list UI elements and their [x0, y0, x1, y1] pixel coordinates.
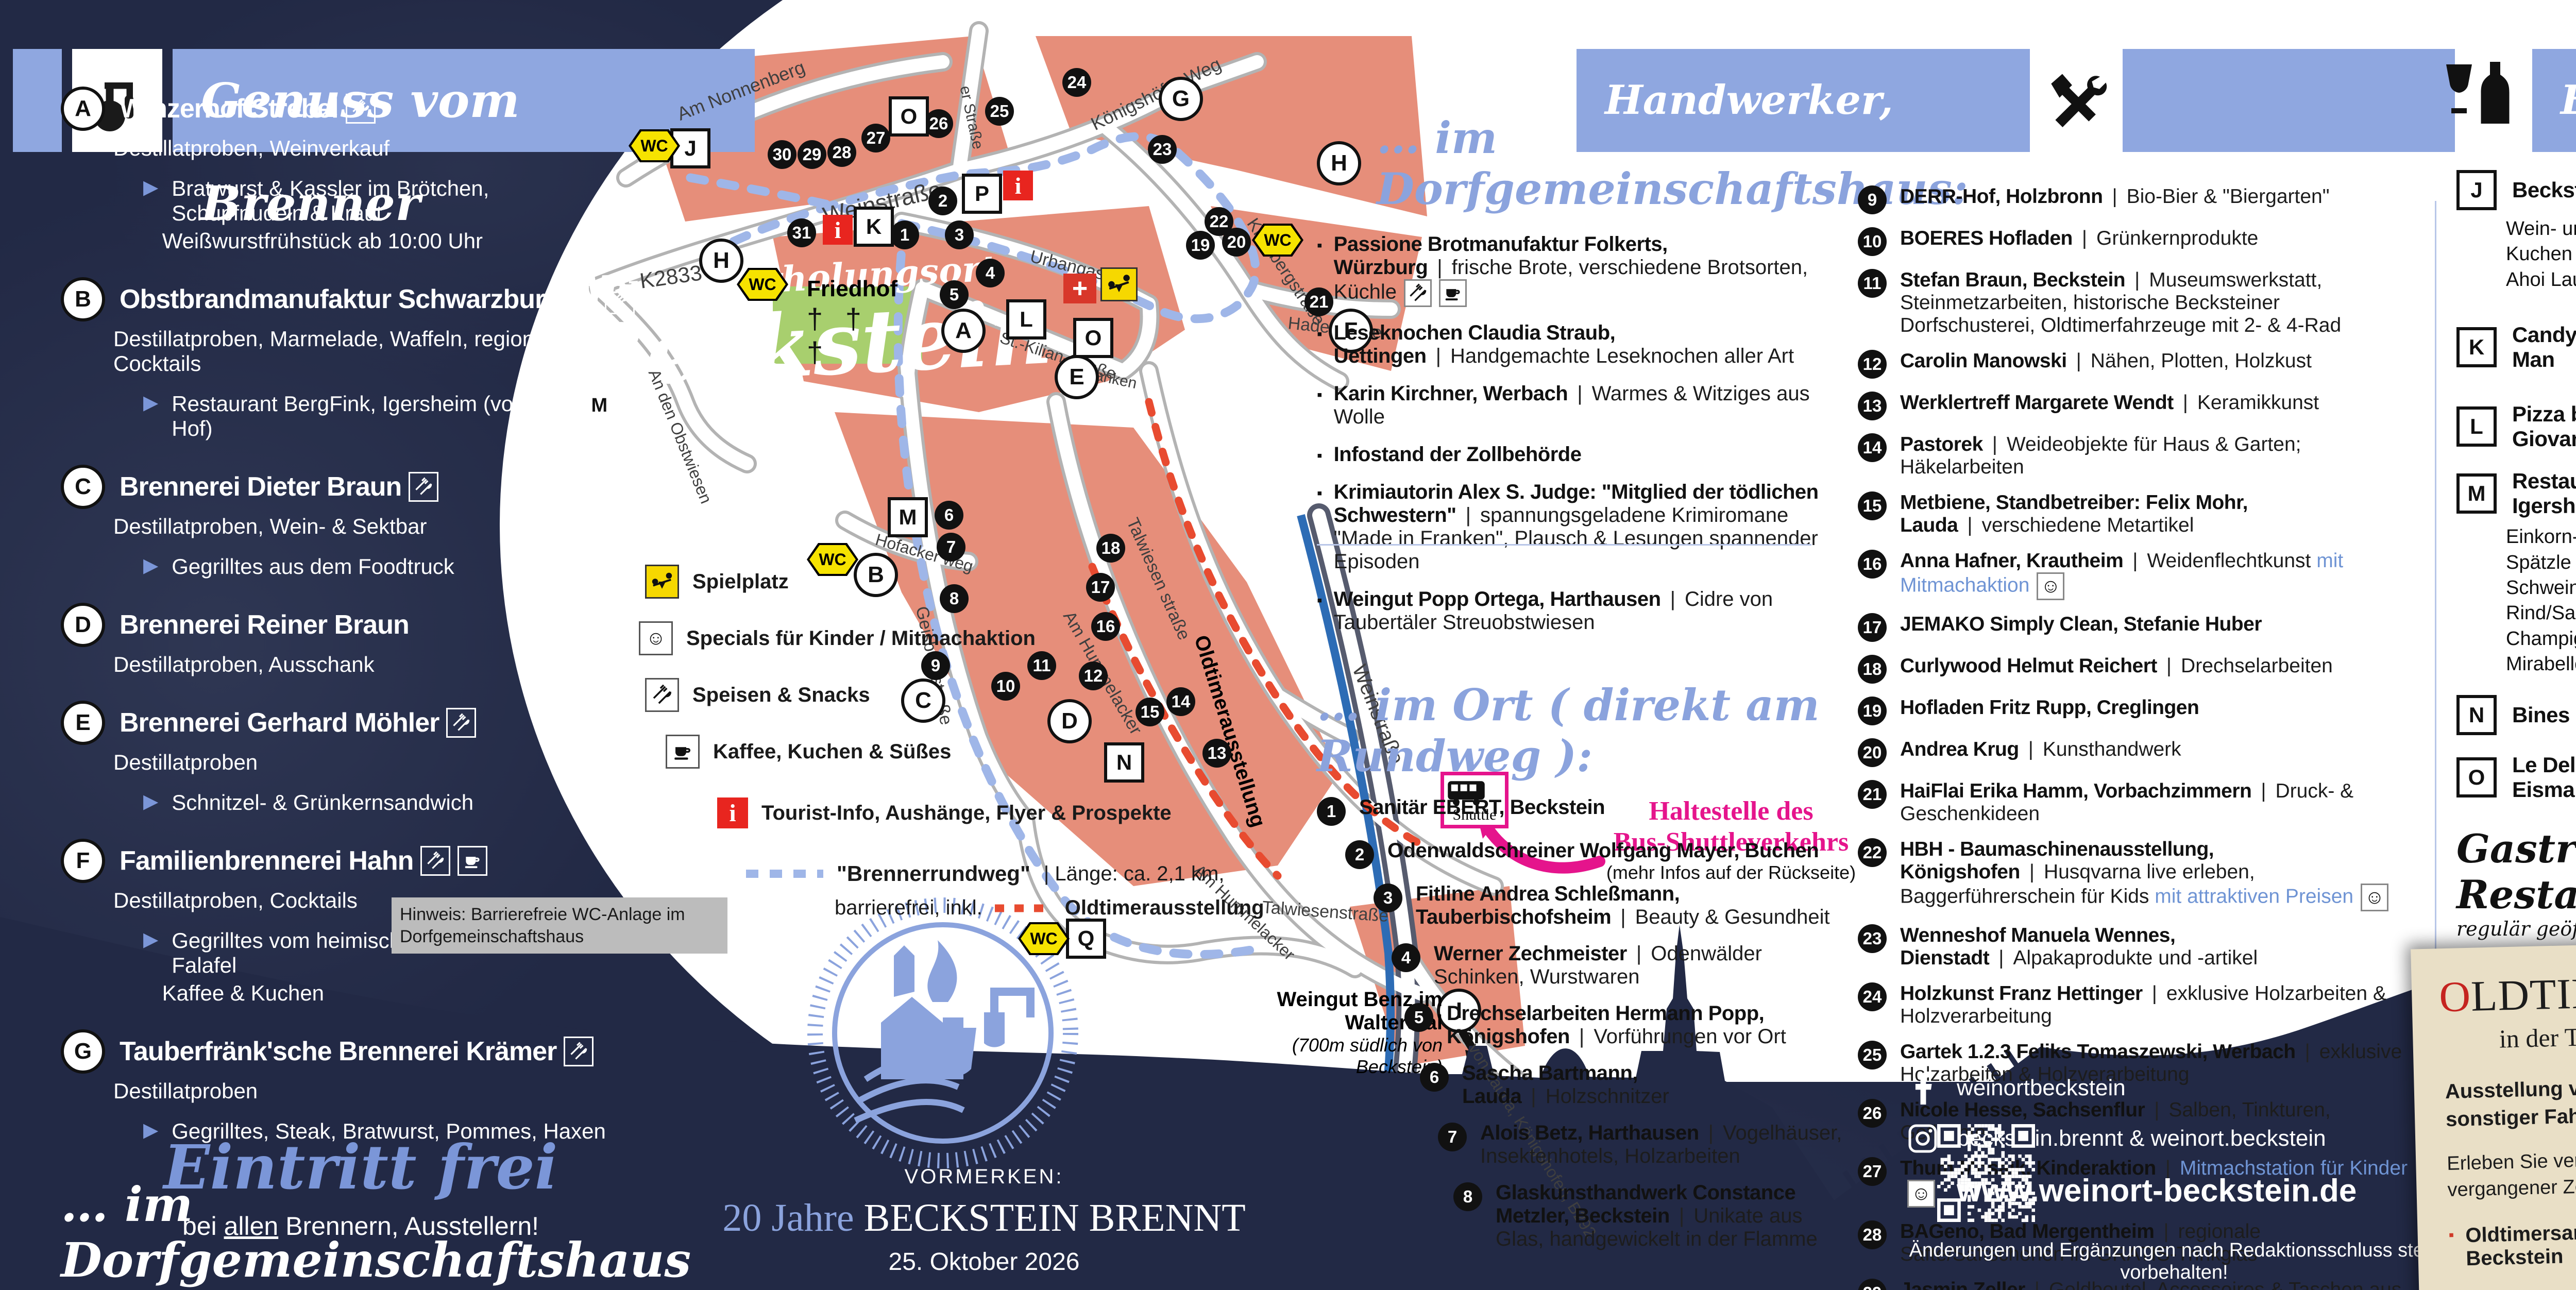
legend-oldtimer: Oldtimerausstellung	[1065, 896, 1264, 920]
smiley-icon: ☺	[639, 621, 673, 655]
divider-horizontal	[1317, 544, 1811, 546]
map-marker-D[interactable]: D	[1047, 699, 1092, 743]
exhibitor-item-18: 18Curlywood Helmut Reichert|Drechselarbe…	[1858, 655, 2420, 684]
exhibitor-desc: Kunsthandwerk	[2043, 738, 2181, 760]
map-marker-square-K[interactable]: K	[854, 207, 894, 247]
legend-kaffee: Kaffee, Kuchen & Süßes	[713, 740, 951, 763]
brenner-desc: Destillatproben	[113, 750, 612, 775]
exhibitor-title: Gartek 1.2.3 Feliks Tomaszewski, Werbach	[1900, 1041, 2296, 1063]
map-marker-6[interactable]: 6	[935, 501, 963, 530]
legend-kinder: Specials für Kinder / Mitmachaktion	[686, 627, 1036, 650]
separator: |	[1967, 514, 1972, 536]
essen-title: Candy Man	[2512, 322, 2576, 372]
exhibitor-desc: Alpakaprodukte und -artikel	[2013, 947, 2258, 969]
cup-icon	[457, 846, 487, 876]
exhibitor-desc: verschiedene Metartikel	[1982, 514, 2194, 536]
save-the-date: VORMERKEN: 20 Jahre BECKSTEIN BRENNT 25.…	[711, 1165, 1257, 1276]
dgh-item-desc: Handgemachte Leseknochen aller Art	[1450, 345, 1794, 367]
right-accent-square	[2370, 49, 2419, 152]
brenner-title: Brennerei Reiner Braun	[120, 609, 409, 640]
instagram-icon	[1906, 1122, 1939, 1155]
separator: |	[1531, 1085, 1536, 1108]
cup-icon	[666, 735, 700, 769]
separator: |	[2112, 185, 2117, 208]
brenner-item-C: CBrennerei Dieter BraunDestillatproben, …	[61, 465, 612, 579]
map-marker-19[interactable]: 19	[1186, 231, 1215, 260]
legend-rundweg-name: "Brennerrundweg"	[837, 861, 1030, 886]
exhibitor-item-20: 20Andrea Krug|Kunsthandwerk	[1858, 738, 2420, 767]
brenner-sub: ▶Restaurant BergFink, Igersheim (vor dem…	[143, 392, 612, 441]
arrow-right-icon: ▶	[143, 176, 158, 200]
dgh-item: ▪Infostand der Zollbehörde	[1317, 443, 1848, 466]
ort-item-5: 5Drechselarbeiten Hermann Popp, Königsho…	[1404, 1002, 1848, 1048]
brenner-item-A: AWinzerhof StrebelDestillatproben, Weinv…	[61, 87, 612, 253]
separator: |	[1998, 947, 2004, 969]
fork-icon	[346, 94, 376, 124]
marker-square-L: L	[2456, 406, 2497, 447]
exhibitor-title: Pastorek	[1900, 433, 1983, 455]
separator: |	[1708, 1122, 1714, 1144]
divider-vertical	[2435, 201, 2436, 963]
marker-number-6: 6	[1420, 1063, 1449, 1092]
fork-icon	[1404, 279, 1432, 307]
brenner-item-E: EBrennerei Gerhard MöhlerDestillatproben…	[61, 701, 612, 815]
exhibitor-desc: Bio-Bier & "Biergarten"	[2127, 185, 2330, 208]
legend-tourist: Tourist-Info, Aushänge, Flyer & Prospekt…	[761, 802, 1172, 825]
friedhof-crosses: † † †	[807, 302, 894, 369]
hinweis-note: Hinweis: Barrierefreie WC-Anlage im Dorf…	[392, 897, 727, 954]
fork-icon	[564, 1037, 594, 1066]
map-marker-8[interactable]: 8	[940, 584, 969, 613]
map-marker-10[interactable]: 10	[991, 672, 1020, 701]
ort-item-desc: Beauty & Gesundheit	[1635, 906, 1830, 928]
brenner-desc: Destillatproben, Wein- & Sektbar	[113, 514, 612, 539]
exhibitor-title: Andrea Krug	[1900, 738, 2019, 760]
separator: |	[1636, 942, 1641, 965]
map-marker-13[interactable]: 13	[1202, 739, 1231, 768]
marker-letter-E: E	[61, 701, 105, 745]
exhibitor-title: BOERES Hofladen	[1900, 227, 2073, 249]
fork-icon	[446, 708, 476, 738]
dgh-heading: H… im Dorfgemeinschaftshaus:	[1317, 112, 1848, 214]
ort-item-6: 6Sascha Bartmann, Lauda|Holzschnitzer	[1420, 1062, 1848, 1108]
ort-item-title: Werner Zechmeister	[1434, 942, 1627, 965]
exhibitor-desc: Keramikkunst	[2197, 392, 2319, 414]
map-marker-square-Q[interactable]: Q	[1066, 919, 1106, 959]
tourist-info-marker[interactable]: i	[1003, 171, 1033, 200]
brenner-item-D: DBrennerei Reiner BraunDestillatproben, …	[61, 603, 612, 677]
marker-letter-G: G	[61, 1029, 105, 1074]
marker-number-9: 9	[1858, 185, 1887, 214]
separator: |	[1579, 1025, 1584, 1048]
exhibitor-title: Werklertreff Margarete Wendt	[1900, 392, 2174, 414]
oldtimer-paragraph-1: Ausstellung verschiedener Autos, Roller …	[2445, 1067, 2576, 1133]
playground-icon	[645, 565, 679, 599]
dgh-item-title: Karin Kirchner, Werbach	[1334, 382, 1568, 405]
separator: |	[2134, 269, 2140, 291]
map-marker-29[interactable]: 29	[798, 140, 826, 169]
cup-icon	[1439, 279, 1467, 307]
brenner-sub-text: Weißwurstfrühstück ab 10:00 Uhr	[162, 229, 483, 253]
brenner-title: Obstbrandmanufaktur Schwarzburg	[120, 284, 561, 315]
exhibitor-item-16: 16Anna Hafner, Krautheim|Weidenflechtkun…	[1858, 550, 2420, 600]
marker-number-8: 8	[1453, 1182, 1482, 1211]
arrow-right-icon	[143, 229, 149, 252]
ort-item-3: 3Fitline Andrea Schleßmann, Tauberbischo…	[1374, 882, 1848, 929]
marker-number-20: 20	[1858, 738, 1887, 767]
marker-square-M: M	[2456, 473, 2497, 514]
marker-number-22: 22	[1858, 838, 1887, 867]
street-label: Friedhof	[807, 276, 897, 302]
gastronomie-heading-text: Gastronomie & Restaurants	[2456, 826, 2576, 918]
marker-letter-C: C	[61, 465, 105, 509]
fork-icon	[409, 472, 438, 502]
ort-item-desc: Vorführungen vor Ort	[1594, 1025, 1786, 1048]
marker-number-7: 7	[1438, 1123, 1467, 1151]
brenner-sub: ▶Bratwurst & Kassler im Brötchen, Schupf…	[143, 176, 612, 226]
essen-title: Bines Bauernhof	[2512, 703, 2576, 727]
map-marker-9[interactable]: 9	[921, 651, 950, 680]
marker-number-21: 21	[1858, 780, 1887, 809]
map-marker-25[interactable]: 25	[985, 97, 1014, 126]
legend-spielplatz: Spielplatz	[692, 570, 789, 593]
marker-letter-F: F	[61, 839, 105, 883]
essen-item-M: MRestaurant BergFink, Igersheim|Regional…	[2456, 469, 2576, 677]
eintritt-line: bei allen Brennern, Ausstellern!	[155, 1211, 567, 1241]
brenner-desc: Destillatproben, Marmelade, Waffeln, reg…	[113, 327, 612, 376]
bullet-icon: ▪	[1317, 386, 1323, 429]
marker-number-26: 26	[1858, 1099, 1887, 1128]
marker-number-23: 23	[1858, 924, 1887, 953]
essen-title: Pizza bei Giovanni	[2512, 402, 2576, 451]
separator: |	[1436, 345, 1441, 367]
essen-title: Restaurant BergFink, Igersheim	[2512, 469, 2576, 518]
marker-letter-D: D	[61, 603, 105, 647]
map-marker-3[interactable]: 3	[945, 220, 974, 249]
marker-number-2: 2	[1345, 840, 1374, 869]
map-marker-14[interactable]: 14	[1166, 687, 1195, 716]
separator: |	[2305, 1041, 2310, 1063]
disclaimer: Änderungen und Ergänzungen nach Redaktio…	[1865, 1240, 2483, 1284]
brenner-item-G: GTauberfränk'sche Brennerei KrämerDestil…	[61, 1029, 612, 1144]
marker-number-27: 27	[1858, 1157, 1887, 1186]
brenner-title: Brennerei Gerhard Möhler	[120, 707, 439, 738]
map-marker-31[interactable]: 31	[787, 218, 816, 247]
map-marker-7[interactable]: 7	[937, 533, 965, 562]
brenner-column: AWinzerhof StrebelDestillatproben, Weinv…	[61, 87, 612, 1290]
separator: |	[2082, 227, 2087, 249]
red-dash-sample	[995, 903, 1052, 913]
exhibitor-desc: Grünkernprodukte	[2096, 227, 2258, 249]
exhibitor-desc: Nähen, Plotten, Holzkust	[2091, 350, 2312, 372]
dgh-item: ▪Leseknochen Claudia Straub, Uettingen|H…	[1317, 321, 1848, 368]
marker-number-15: 15	[1858, 491, 1887, 520]
map-marker-17[interactable]: 17	[1086, 573, 1115, 602]
blue-dash-sample	[746, 869, 823, 879]
oldtimer-bullet-2: sowie private Sammlerfreunde aus der Reg…	[2467, 1281, 2576, 1290]
marker-letter-H: H	[1317, 141, 1361, 185]
oldtimer-title: OLDTIMER-AUSSTELLUNG	[2411, 958, 2576, 1023]
oldtimer-bullet-1: Oldtimersammlung Stefan Braun, Beckstein	[2465, 1214, 2576, 1270]
marker-letter-B: B	[61, 277, 105, 321]
essen-item-J: JBecksteiner Winzer eGWein- und Sektspez…	[2456, 170, 2576, 293]
exhibitor-title: Holzkunst Franz Hettinger	[1900, 982, 2143, 1005]
tourist-info-marker[interactable]: i	[823, 215, 853, 245]
separator: |	[1437, 256, 1442, 279]
map-marker-30[interactable]: 30	[768, 140, 796, 169]
marker-number-12: 12	[1858, 350, 1887, 379]
map-marker-B[interactable]: B	[854, 553, 898, 597]
separator: |	[1992, 433, 1997, 455]
marker-number-17: 17	[1858, 613, 1887, 642]
exhibitor-item-10: 10BOERES Hofladen|Grünkernprodukte	[1858, 227, 2420, 256]
map-marker-C[interactable]: C	[901, 678, 945, 723]
map-marker-square-M[interactable]: M	[888, 497, 928, 537]
bullet-icon: ▪	[1317, 237, 1323, 307]
exhibitor-title: HaiFlai Erika Hamm, Vorbachzimmern	[1900, 780, 2251, 802]
smiley-icon: ☺	[2361, 884, 2388, 911]
marker-square-O: O	[2456, 757, 2497, 797]
marker-number-10: 10	[1858, 227, 1887, 256]
brenner-title: Winzerhof Strebel	[120, 93, 338, 124]
map-marker-square-P[interactable]: P	[962, 174, 1002, 214]
vormerken-label: VORMERKEN:	[711, 1165, 1257, 1189]
brenner-desc: Destillatproben, Ausschank	[113, 652, 612, 677]
legend-rundweg-barrier: barrierefrei, inkl.	[835, 896, 982, 920]
exhibitor-item-12: 12Carolin Manowski|Nähen, Plotten, Holzk…	[1858, 350, 2420, 379]
essen-title: Le Delizie Eismanufaktur	[2512, 753, 2576, 802]
arrow-right-icon: ▶	[143, 790, 158, 814]
marker-number-5: 5	[1404, 1003, 1433, 1032]
marker-number-3: 3	[1374, 884, 1402, 912]
ort-item-7: 7Alois Betz, Harthausen|Vogelhäuser, Ins…	[1438, 1122, 1848, 1168]
ort-item-1: 1Sanitär EBERT, Beckstein	[1317, 796, 1848, 826]
legend-speisen: Speisen & Snacks	[692, 684, 870, 707]
eintritt-frei: Eintritt frei bei allen Brennern, Ausste…	[155, 1131, 567, 1241]
flyer-beckstein-brennt: Genuss vom Brenner Handwerker, Kunst & A…	[0, 0, 2576, 1290]
facebook-handle: weinortbeckstein	[1957, 1075, 2126, 1101]
exhibitor-item-14: 14Pastorek|Weideobjekte für Haus & Garte…	[1858, 433, 2420, 479]
oldtimer-paragraph-2: Erleben Sie verschiedene Relikte aus län…	[2447, 1141, 2576, 1204]
tourist-info-icon: i	[717, 797, 748, 828]
map-marker-2[interactable]: 2	[928, 186, 957, 215]
exhibitor-title: Curlywood Helmut Reichert	[1900, 655, 2157, 677]
brenner-sub-text: Gegrilltes aus dem Foodtruck	[172, 554, 454, 579]
map-marker-A[interactable]: A	[941, 309, 986, 353]
essen-desc2: Einkorn-Knöpfle mit Knalleffekt (vegetar…	[2506, 524, 2576, 677]
brenner-sub-text: Schnitzel- & Grünkernsandwich	[172, 790, 473, 815]
marker-square-K: K	[2456, 327, 2497, 367]
exhibitor-desc-highlight: mit attraktiven Preisen	[2155, 885, 2353, 907]
exhibitor-title: JEMAKO Simply Clean, Stefanie Huber	[1900, 613, 2262, 635]
dgh-item: ▪Karin Kirchner, Werbach|Warmes & Witzig…	[1317, 382, 1848, 429]
exhibitor-title: Anna Hafner, Krautheim	[1900, 550, 2123, 572]
map-marker-24[interactable]: 24	[1062, 68, 1091, 97]
qr-code	[1937, 1124, 2035, 1222]
ort-item-title: Odenwaldschreiner Wolfgang Mayer, Buchen	[1387, 839, 1819, 862]
fork-icon	[645, 678, 679, 712]
bullet-icon: ▪	[1317, 485, 1323, 573]
exhibitor-item-22: 22HBH - Baumaschinenausstellung, Königsh…	[1858, 838, 2420, 911]
separator: |	[1679, 1204, 1684, 1227]
brenner-sub: ▶Schnitzel- & Grünkernsandwich	[143, 790, 612, 815]
ort-item-4: 4Werner Zechmeister|Odenwälder Schinken,…	[1392, 942, 1848, 989]
marker-number-13: 13	[1858, 392, 1887, 420]
marker-number-24: 24	[1858, 982, 1887, 1011]
marker-number-11: 11	[1858, 269, 1887, 298]
exhibitor-desc: Weidenflechtkunst	[2147, 550, 2316, 572]
map-marker-square-O[interactable]: O	[889, 96, 929, 137]
brenner-item-B: BObstbrandmanufaktur SchwarzburgDestilla…	[61, 277, 612, 441]
dgh-item-title: Infostand der Zollbehörde	[1334, 443, 1582, 466]
header-essen: Essen, Wein & Kulinarisches	[2532, 49, 2576, 152]
brenner-desc: Destillatproben, Weinverkauf	[113, 136, 612, 161]
oldtimer-panel: OLDTIMER-AUSSTELLUNG in der Talwiesenstr…	[2411, 935, 2576, 1290]
separator: |	[2028, 738, 2033, 760]
separator: |	[1577, 382, 1582, 405]
marker-number-14: 14	[1858, 433, 1887, 462]
dgh-item: ▪Weingut Popp Ortega, Harthausen|Cidre v…	[1317, 588, 1848, 634]
separator: |	[1620, 906, 1625, 928]
brenner-title: Familienbrennerei Hahn	[120, 845, 413, 876]
separator: |	[2076, 350, 2081, 372]
facebook-icon	[1906, 1072, 1939, 1105]
dorfgemeinschaftshaus-list: H… im Dorfgemeinschaftshaus:▪Passione Br…	[1317, 112, 1848, 1264]
tools-icon	[2038, 49, 2115, 152]
bullet-icon: ▪	[1317, 326, 1323, 368]
map-marker-27[interactable]: 27	[861, 124, 890, 152]
exhibitor-desc: Drechselarbeiten	[2181, 655, 2333, 677]
spacer	[1317, 649, 1848, 680]
marker-number-18: 18	[1858, 655, 1887, 684]
exhibitor-title: Stefan Braun, Beckstein	[1900, 269, 2125, 291]
fork-icon	[420, 846, 450, 876]
map-marker-square-L[interactable]: L	[1006, 299, 1046, 340]
separator: |	[2029, 861, 2035, 883]
brenner-sub-text: Kaffee & Kuchen	[162, 981, 324, 1006]
arrow-right-icon: ▶	[143, 392, 158, 415]
exhibitor-item-15: 15Metbiene, Standbetreiber: Felix Mohr, …	[1858, 491, 2420, 537]
arrow-right-icon: ▶	[143, 554, 158, 578]
brenner-sub: Kaffee & Kuchen	[143, 981, 612, 1006]
marker-number-25: 25	[1858, 1041, 1887, 1070]
ort-item-8: 8Glaskunsthandwerk Constance Metzler, Be…	[1453, 1181, 1848, 1251]
exhibitor-item-19: 19Hofladen Fritz Rupp, Creglingen	[1858, 697, 2420, 725]
first-aid-marker: +	[1063, 274, 1096, 303]
ort-item-title: Sanitär EBERT, Beckstein	[1359, 796, 1605, 819]
exhibitor-item-21: 21HaiFlai Erika Hamm, Vorbachzimmern|Dru…	[1858, 780, 2420, 825]
separator: |	[2152, 982, 2157, 1005]
left-accent-square	[13, 49, 62, 152]
event-20-jahre: 20 Jahre BECKSTEIN BRENNT	[711, 1196, 1257, 1241]
map-marker-15[interactable]: 15	[1136, 698, 1164, 726]
arrow-right-icon: ▶	[143, 928, 158, 952]
arrow-right-icon	[143, 981, 149, 1005]
map-marker-16[interactable]: 16	[1091, 612, 1120, 641]
brenner-sub: ▶Gegrilltes aus dem Foodtruck	[143, 554, 612, 579]
marker-number-1: 1	[1317, 797, 1346, 826]
essen-title: Becksteiner Winzer eG	[2512, 178, 2576, 202]
separator: |	[2132, 550, 2138, 572]
ort-item-title: Alois Betz, Harthausen	[1480, 1122, 1699, 1144]
map-marker-28[interactable]: 28	[827, 138, 856, 167]
marker-number-16: 16	[1858, 550, 1887, 579]
essen-item-N: NBines Bauernhof|verschiedene Crêpes	[2456, 695, 2576, 735]
dgh-item: ▪Passione Brotmanufaktur Folkerts, Würzb…	[1317, 233, 1848, 307]
ort-item-2: 2Odenwaldschreiner Wolfgang Mayer, Buche…	[1345, 839, 1848, 869]
separator: |	[1670, 588, 1675, 610]
exhibitor-title: Hofladen Fritz Rupp, Creglingen	[1900, 697, 2199, 719]
map-marker-22[interactable]: 22	[1205, 207, 1233, 236]
bullet-icon: ▪	[1317, 592, 1323, 634]
marker-square-J: J	[2456, 170, 2497, 210]
exhibitor-item-11: 11Stefan Braun, Beckstein|Museumswerksta…	[1858, 269, 2420, 337]
marker-square-N: N	[2456, 695, 2497, 735]
bullet-icon: ▪	[1317, 447, 1323, 466]
exhibitor-item-23: 23Wenneshof Manuela Wennes, Dienstadt|Al…	[1858, 924, 2420, 970]
exhibitor-title: DERR-Hof, Holzbronn	[1900, 185, 2103, 208]
map-marker-1[interactable]: 1	[890, 220, 919, 249]
map-marker-4[interactable]: 4	[976, 259, 1005, 287]
exhibitor-item-17: 17JEMAKO Simply Clean, Stefanie Huber	[1858, 613, 2420, 642]
brenner-title: Brennerei Dieter Braun	[120, 471, 401, 502]
marker-number-4: 4	[1392, 943, 1420, 972]
playground-marker	[1100, 267, 1138, 301]
map-marker-square-N[interactable]: N	[1104, 742, 1144, 783]
legend-rundweg-length: | Länge: ca. 2,1 km,	[1044, 862, 1225, 886]
marker-letter-A: A	[61, 87, 105, 131]
separator: |	[2183, 392, 2188, 414]
separator: |	[2166, 655, 2172, 677]
ort-item-desc: Holzschnitzer	[1546, 1085, 1669, 1108]
separator: |	[1466, 504, 1471, 527]
brenner-sub: Weißwurstfrühstück ab 10:00 Uhr	[143, 229, 612, 253]
brenner-desc: Destillatproben	[113, 1079, 612, 1104]
map-marker-5[interactable]: 5	[940, 280, 969, 309]
exhibitor-item-24: 24Holzkunst Franz Hettinger|exklusive Ho…	[1858, 982, 2420, 1028]
essen-item-K: KCandy Man|Mandeln, Magenbrot & Süßes, K…	[2456, 310, 2576, 384]
smiley-icon: ☺	[2037, 572, 2064, 600]
map-marker-E[interactable]: E	[1055, 355, 1099, 399]
brenner-sub-text: Bratwurst & Kassler im Brötchen, Schupfn…	[172, 176, 612, 226]
event-date: 25. Oktober 2026	[711, 1248, 1257, 1276]
wine-icon	[2429, 49, 2524, 152]
map-marker-12[interactable]: 12	[1079, 661, 1108, 690]
brenner-sub-text: Restaurant BergFink, Igersheim (vor dem …	[172, 392, 577, 441]
eintritt-title: Eintritt frei	[155, 1131, 567, 1203]
map-marker-11[interactable]: 11	[1027, 651, 1056, 680]
essen-item-L: LPizza bei Giovanni|verschiedene Pizzen …	[2456, 402, 2576, 451]
map-marker-square-O[interactable]: O	[1073, 318, 1113, 358]
map-marker-18[interactable]: 18	[1096, 534, 1125, 563]
ort-heading: … im Ort ( direkt am Rundweg ):	[1317, 680, 1848, 782]
dgh-item-title: Weingut Popp Ortega, Harthausen	[1334, 588, 1661, 610]
brenner-title: Tauberfränk'sche Brennerei Krämer	[120, 1036, 556, 1067]
map-marker-G[interactable]: G	[1159, 77, 1203, 121]
essen-item-O: OLe Delizie Eismanufaktur|verschiedene E…	[2456, 753, 2576, 802]
map-marker-H[interactable]: H	[699, 239, 743, 283]
gastronomie-heading: Gastronomie & Restaurantsbei Beckstein b…	[2456, 826, 2576, 940]
exhibitor-title: Carolin Manowski	[1900, 350, 2067, 372]
dgh-item: ▪Krimiautorin Alex S. Judge: "Mitglied d…	[1317, 481, 1848, 573]
map-marker-23[interactable]: 23	[1148, 135, 1177, 164]
marker-number-19: 19	[1858, 697, 1887, 725]
separator: |	[2261, 780, 2266, 802]
essen-desc2: Wein- und Sektspezialitäten, Cocktails; …	[2506, 216, 2576, 293]
exhibitor-item-13: 13Werklertreff Margarete Wendt|Keramikku…	[1858, 392, 2420, 420]
exhibitor-item-9: 9DERR-Hof, Holzbronn|Bio-Bier & "Biergar…	[1858, 185, 2420, 214]
